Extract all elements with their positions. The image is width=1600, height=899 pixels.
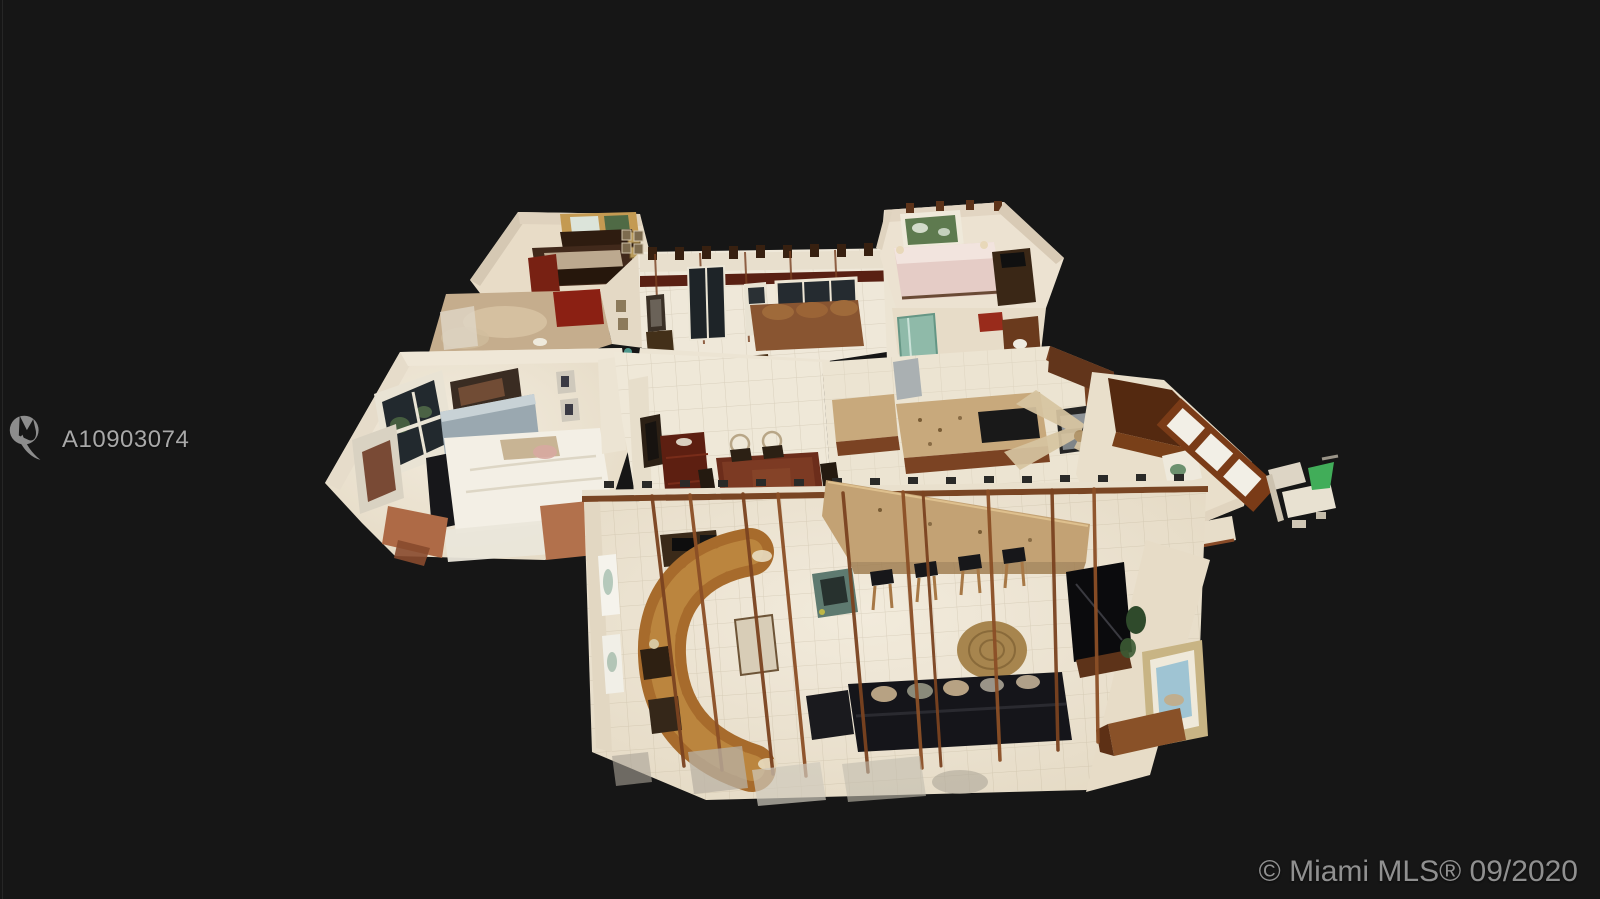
watermark: A10903074 [8, 414, 189, 466]
listing-id: A10903074 [62, 426, 189, 454]
family-room [582, 474, 1210, 806]
dollhouse-3d-view [0, 0, 1600, 899]
miami-mls-logo-icon [8, 414, 44, 466]
round-ottoman [957, 621, 1027, 679]
framed-art [352, 424, 404, 514]
fridge [893, 358, 922, 400]
bedroom-2 [876, 200, 1064, 308]
photo-canvas: A10903074 © Miami MLS® 09/2020 [0, 0, 1600, 899]
scan-fragments [1266, 456, 1338, 528]
flat-tv [1066, 562, 1132, 678]
master-bedroom [325, 348, 630, 566]
copyright-text: © Miami MLS® 09/2020 [1259, 855, 1578, 889]
red-vanity [553, 289, 604, 327]
art-frame [640, 414, 664, 468]
dresser [528, 254, 560, 296]
